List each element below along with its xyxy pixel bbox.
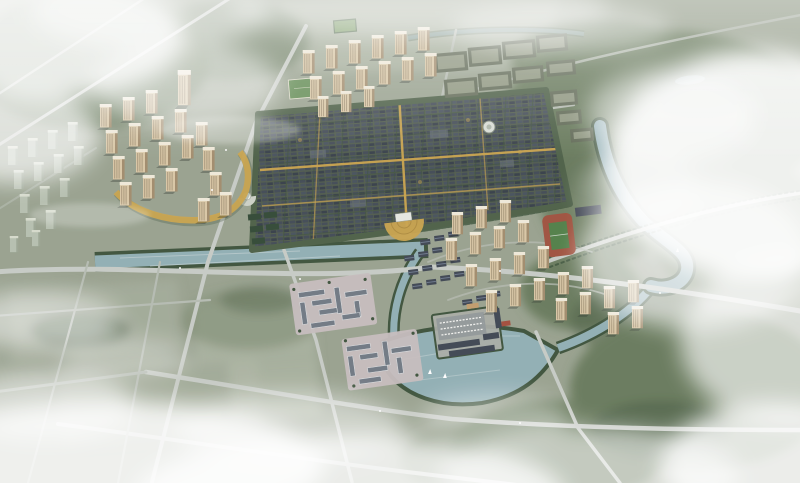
aerial-masterplan-rendering (0, 0, 800, 483)
masterplan-scene (0, 0, 800, 483)
global-tint (0, 0, 800, 483)
